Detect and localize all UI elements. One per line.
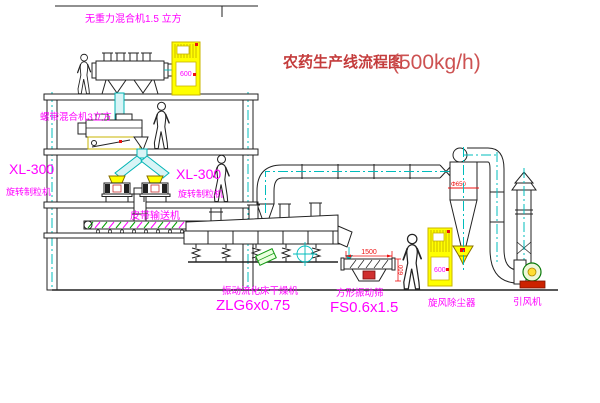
fan-base [520, 281, 545, 288]
vibrating-screen: 1500 600 [341, 249, 405, 281]
label-cyclone-name: 旋风除尘器 [428, 297, 476, 309]
control-cabinet-lower: 600 [428, 228, 452, 286]
indicator-light [195, 43, 198, 46]
worker-figure [154, 102, 169, 148]
label-fan-name: 引风机 [513, 296, 542, 308]
flow-diagram-canvas: 600 [0, 0, 600, 403]
indicator-light [447, 230, 450, 233]
label-dryer-name: 振动流化床干燥机 [222, 285, 299, 297]
indicator-light [193, 73, 196, 76]
granulator-right [140, 176, 170, 202]
granulator-left [102, 176, 132, 202]
diagram-title: 农药生产线流程图 [282, 53, 403, 71]
cabinet-panel-text: 600 [434, 267, 446, 274]
label-screen-name: 方形振动筛 [336, 287, 384, 299]
label-granulator-left-name: 旋转制粒机 [6, 186, 51, 197]
label-dryer-model: ZLG6x0.75 [216, 297, 290, 314]
label-gravity-mixer: 无重力混合机1.5 立方 [85, 12, 182, 25]
sample-drum [256, 249, 277, 266]
dim-cyclone-flange: Φ650 [451, 182, 466, 188]
label-screen-model: FS0.6x1.5 [330, 299, 398, 316]
induced-draft-fan [514, 260, 545, 288]
vibration-motor [363, 271, 375, 279]
dim-screen-length: 1500 [361, 249, 377, 256]
gravity-free-mixer [92, 53, 180, 121]
dim-screen-width: 600 [399, 264, 405, 275]
worker-figure [403, 234, 421, 289]
control-cabinet-upper: 600 [172, 42, 200, 95]
label-belt-conveyor: 皮带输送机 [130, 209, 180, 222]
drawing-page: 600 [0, 0, 600, 403]
cabinet-panel-text: 600 [180, 71, 192, 78]
label-ribbon-mixer: 螺带混合机3立方 [40, 111, 112, 123]
indicator-light [446, 268, 449, 271]
label-granulator-right-model: XL-300 [176, 166, 221, 182]
worker-figure [78, 54, 91, 93]
label-granulator-right-name: 旋转制粒机 [178, 188, 223, 199]
diagram-title-capacity: (500kg/h) [392, 51, 481, 74]
label-granulator-left-model: XL-300 [9, 161, 54, 177]
